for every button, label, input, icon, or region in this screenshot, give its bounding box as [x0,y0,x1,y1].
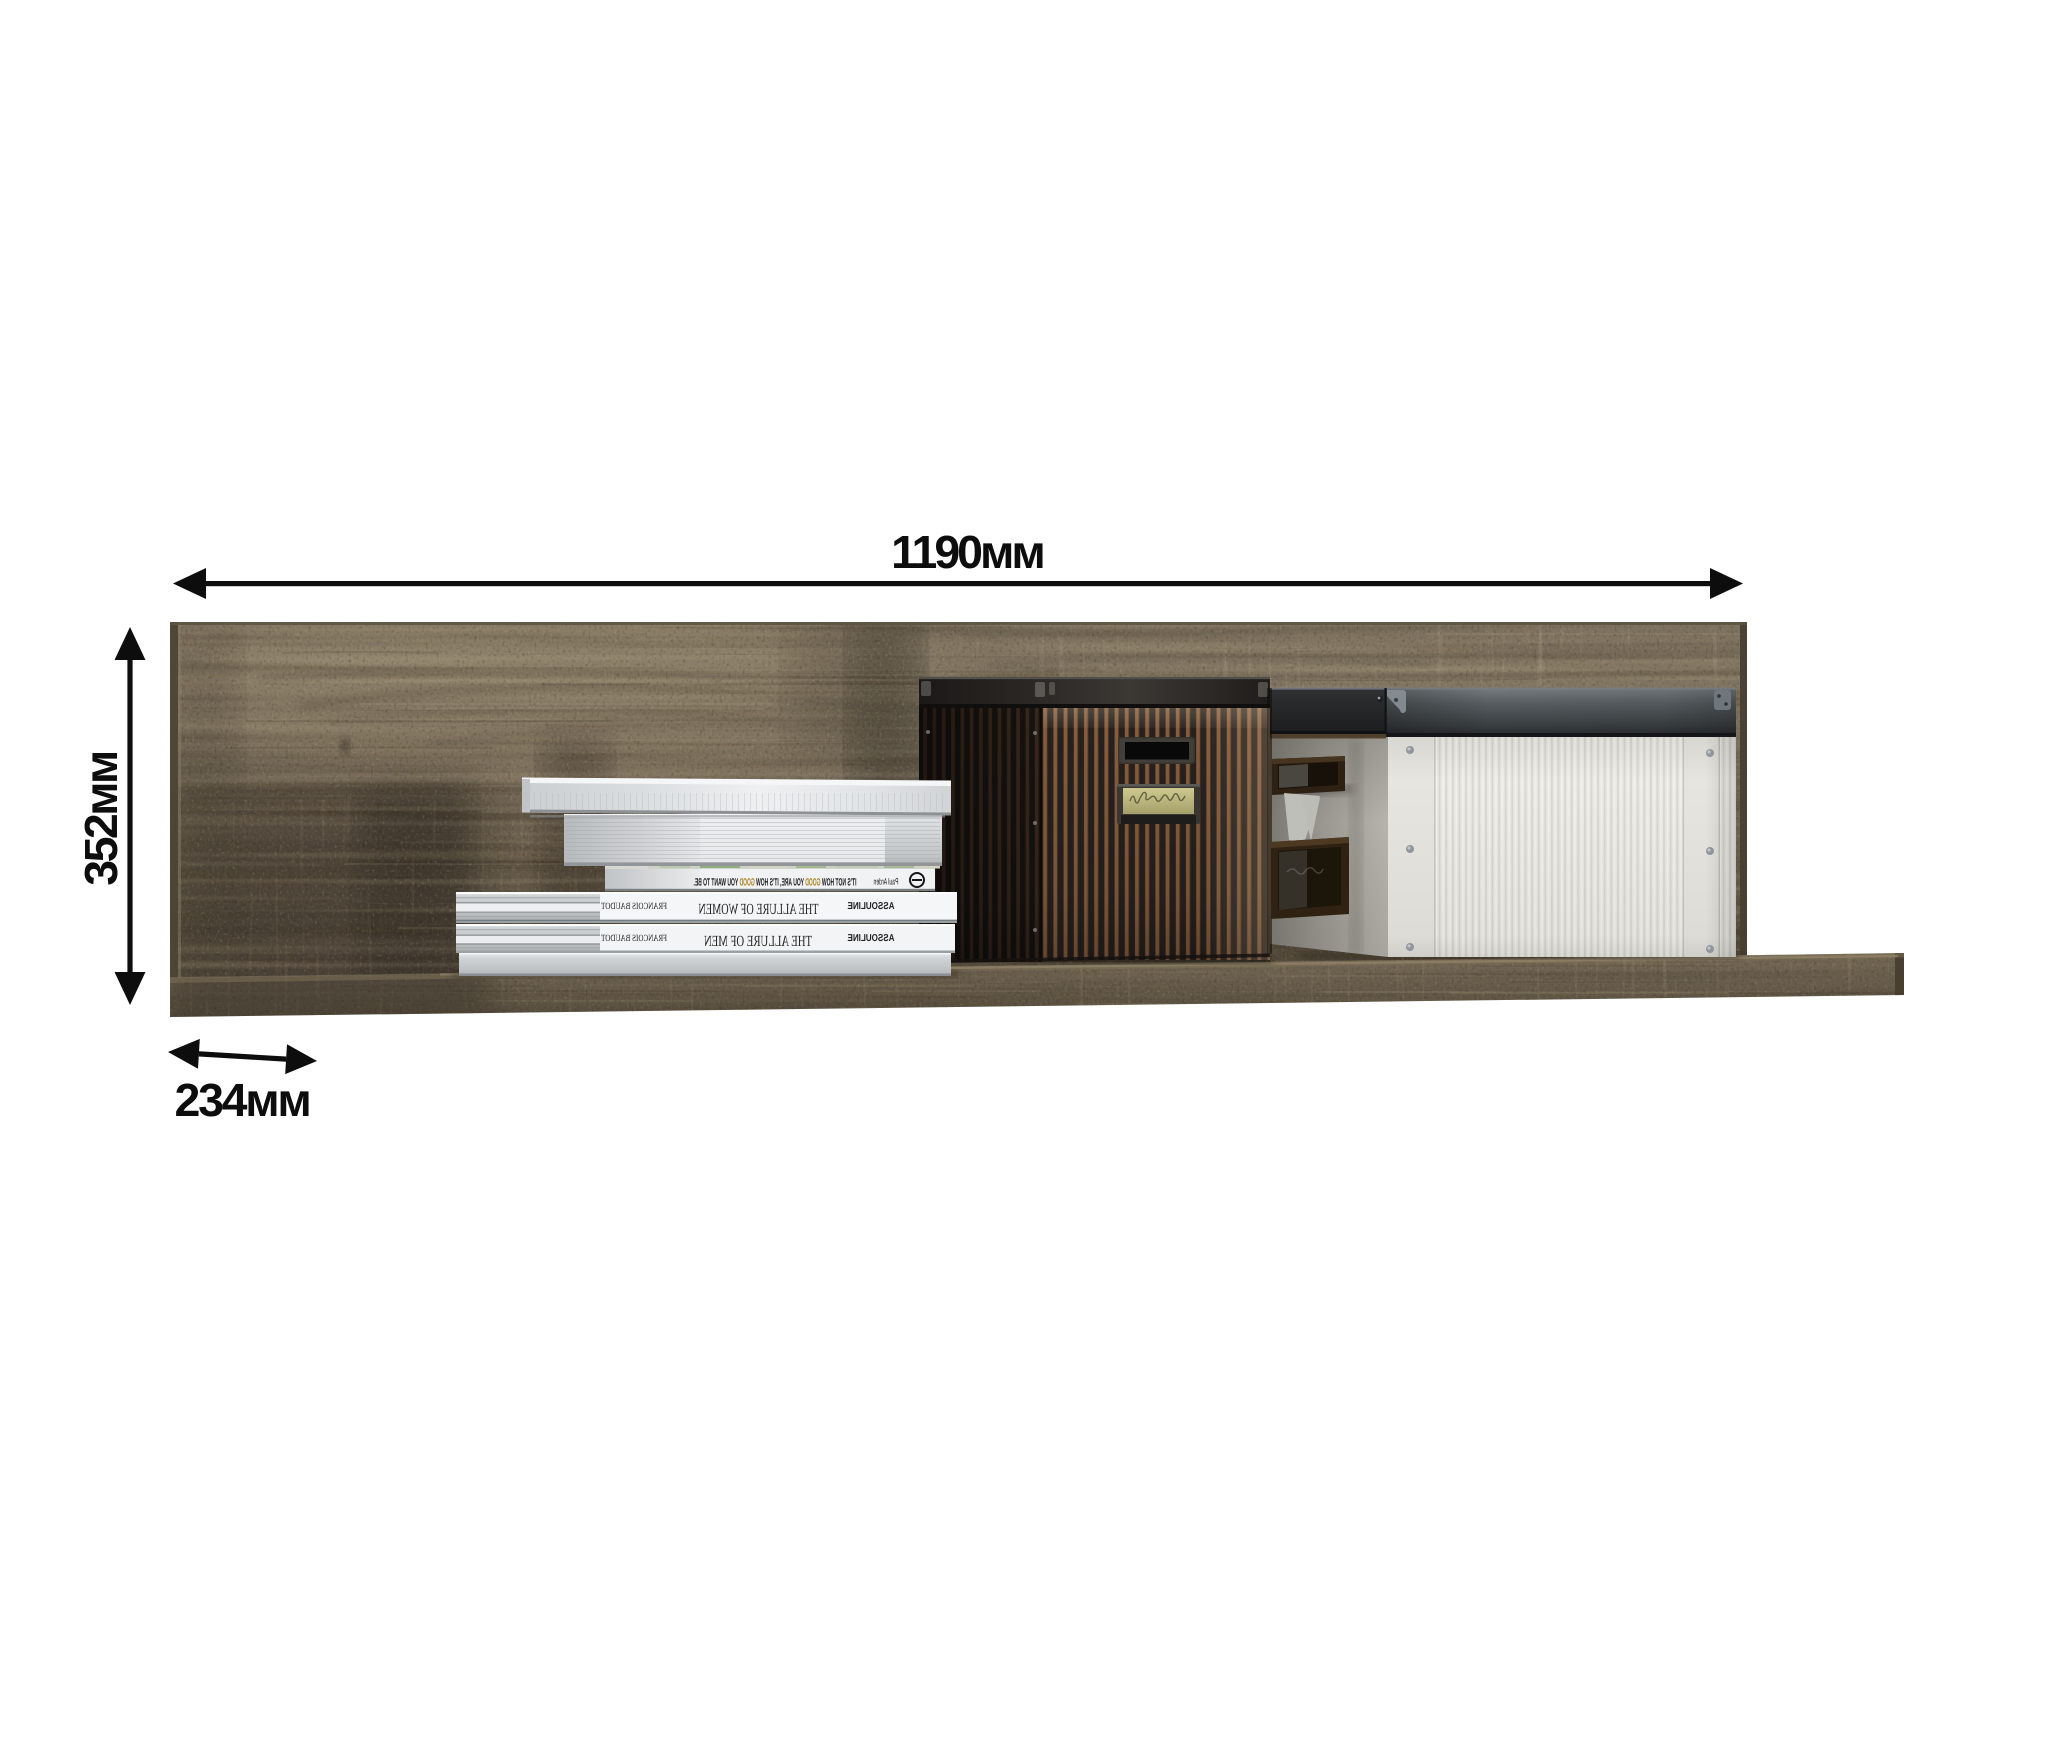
svg-text:ASSOULINE: ASSOULINE [847,933,894,944]
svg-text:234мм: 234мм [175,1074,310,1126]
svg-text:IT’S NOT HOW GOOD YOU ARE, IT’: IT’S NOT HOW GOOD YOU ARE, IT’S HOW GOOD… [693,877,856,889]
svg-text:1190мм: 1190мм [891,526,1043,578]
svg-text:Paul Arden: Paul Arden [874,877,899,887]
svg-text:THE ALLURE OF WOMEN: THE ALLURE OF WOMEN [699,901,819,918]
svg-text:THE ALLURE OF MEN: THE ALLURE OF MEN [704,933,812,950]
svg-text:FRANCOIS BAUDOT: FRANCOIS BAUDOT [601,934,667,944]
svg-text:352мм: 352мм [75,752,127,886]
svg-text:FRANCOIS BAUDOT: FRANCOIS BAUDOT [601,902,667,912]
svg-text:ASSOULINE: ASSOULINE [847,901,894,912]
